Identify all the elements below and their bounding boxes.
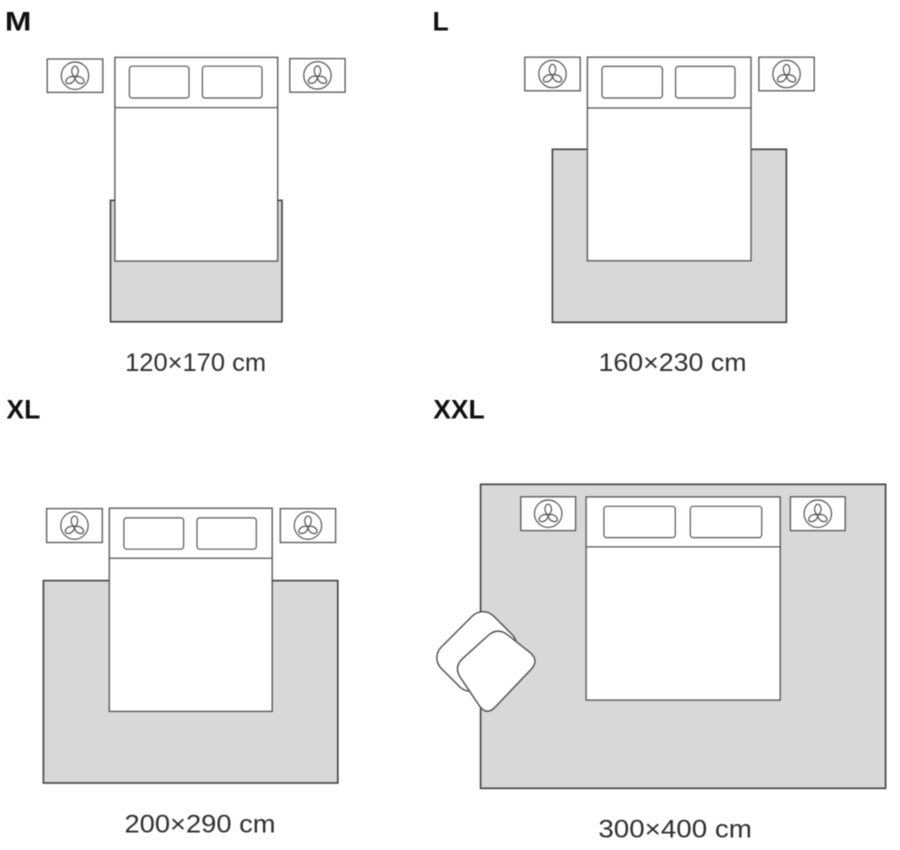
svg-text:XL: XL	[6, 395, 40, 425]
svg-text:L: L	[433, 6, 449, 36]
svg-text:300×400 cm: 300×400 cm	[598, 816, 752, 844]
svg-text:M: M	[5, 8, 31, 37]
svg-text:XXL: XXL	[433, 394, 485, 424]
svg-text:200×290 cm: 200×290 cm	[125, 810, 276, 838]
svg-text:160×230 cm: 160×230 cm	[599, 349, 747, 377]
svg-text:120×170 cm: 120×170 cm	[125, 349, 266, 377]
